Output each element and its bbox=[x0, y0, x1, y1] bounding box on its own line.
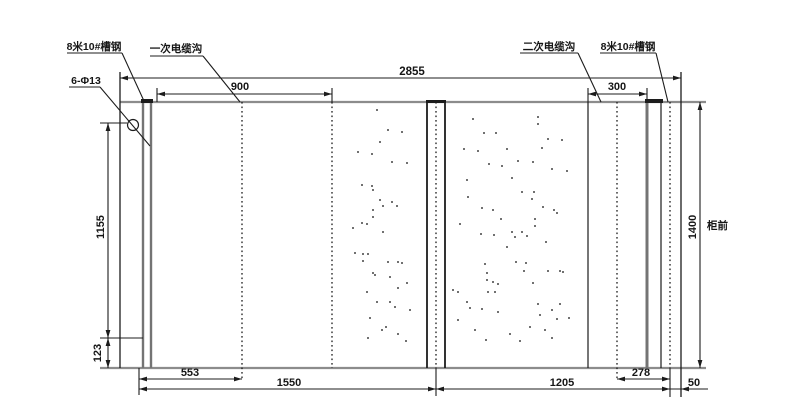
stipple-dot bbox=[559, 270, 561, 272]
stipple-dot bbox=[541, 147, 543, 149]
dimension-arrow bbox=[157, 92, 165, 97]
dimension-arrow bbox=[662, 387, 670, 392]
stipple-dot bbox=[506, 246, 508, 248]
stipple-dot bbox=[537, 116, 539, 118]
steel-end-cap bbox=[426, 100, 446, 103]
dimension-arrow bbox=[588, 92, 596, 97]
dimension-arrow bbox=[662, 377, 670, 382]
stipple-dot bbox=[397, 333, 399, 335]
stipple-dot bbox=[509, 333, 511, 335]
stipple-dot bbox=[497, 283, 499, 285]
stipple-dot bbox=[545, 241, 547, 243]
stipple-dot bbox=[381, 329, 383, 331]
stipple-dot bbox=[401, 131, 403, 133]
stipple-dot bbox=[354, 252, 356, 254]
stipple-dot bbox=[551, 168, 553, 170]
drawing-labels: 2855 900 300 553 278 1550 1205 50 1155 1… bbox=[67, 40, 729, 389]
stipple-dot bbox=[521, 231, 523, 233]
stipple-dot bbox=[459, 223, 461, 225]
dim-rail-to-right-edge-label: 50 bbox=[688, 377, 700, 389]
dimension-arrow bbox=[324, 92, 332, 97]
stipple-dot bbox=[486, 279, 488, 281]
dimension-arrow bbox=[139, 377, 147, 382]
stipple-dot bbox=[537, 303, 539, 305]
callout-cabinet-front: 柜前 bbox=[706, 219, 728, 232]
stipple-dot bbox=[556, 212, 558, 214]
stipple-dot bbox=[357, 151, 359, 153]
stipple-dot bbox=[529, 326, 531, 328]
stipple-dot bbox=[379, 199, 381, 201]
dimension-arrow bbox=[106, 330, 111, 338]
stipple-dot bbox=[477, 150, 479, 152]
stipple-dot bbox=[495, 132, 497, 134]
dimension-arrow bbox=[234, 377, 242, 382]
stipple-dot bbox=[452, 289, 454, 291]
stipple-dot bbox=[372, 209, 374, 211]
stipple-dot bbox=[472, 118, 474, 120]
dim-trench-to-rail-right-label: 278 bbox=[632, 367, 650, 379]
stipple-dot bbox=[487, 291, 489, 293]
dimension-arrow bbox=[698, 102, 703, 110]
stipple-dot bbox=[369, 317, 371, 319]
stipple-dot bbox=[361, 184, 363, 186]
stipple-dot bbox=[562, 271, 564, 273]
stipple-dot bbox=[394, 306, 396, 308]
stipple-dot bbox=[497, 311, 499, 313]
stipple-dot bbox=[506, 148, 508, 150]
dimension-arrow bbox=[698, 360, 703, 368]
stipple-dot bbox=[539, 314, 541, 316]
callout-bolt-holes: 6-Φ13 bbox=[71, 75, 101, 87]
stipple-dot bbox=[537, 123, 539, 125]
dim-rail-to-primary-trench-label: 553 bbox=[181, 367, 199, 379]
stipple-dot bbox=[532, 161, 534, 163]
stipple-dot bbox=[466, 179, 468, 181]
foundation-plan-drawing: 2855 900 300 553 278 1550 1205 50 1155 1… bbox=[0, 0, 790, 417]
stipple-dot bbox=[466, 301, 468, 303]
stipple-dot bbox=[551, 337, 553, 339]
stipple-dot bbox=[379, 141, 381, 143]
stipple-dot bbox=[534, 225, 536, 227]
dim-foundation-depth-label: 1400 bbox=[687, 215, 699, 239]
stipple-dot bbox=[457, 319, 459, 321]
stipple-dot bbox=[389, 301, 391, 303]
stipple-dot bbox=[366, 291, 368, 293]
dimension-arrow bbox=[436, 387, 444, 392]
stipple-dot bbox=[485, 339, 487, 341]
stipple-dot bbox=[532, 282, 534, 284]
dimension-arrow bbox=[617, 377, 625, 382]
stipple-dot bbox=[391, 161, 393, 163]
dim-secondary-trench-width-label: 300 bbox=[608, 81, 626, 93]
stipple-dot bbox=[374, 274, 376, 276]
stipple-dot bbox=[406, 282, 408, 284]
stipple-dot bbox=[515, 261, 517, 263]
stipple-dot bbox=[517, 160, 519, 162]
stipple-dot bbox=[492, 281, 494, 283]
stipple-dot bbox=[486, 272, 488, 274]
stipple-dot bbox=[371, 185, 373, 187]
dim-hole-span-vertical-label: 1155 bbox=[95, 215, 107, 239]
stipple-dot bbox=[481, 207, 483, 209]
stipple-dot bbox=[474, 329, 476, 331]
callout-secondary-cable-trench: 二次电缆沟 bbox=[523, 40, 576, 53]
callout-channel-steel-left: 8米10#槽钢 bbox=[67, 40, 122, 53]
stipple-dot bbox=[401, 262, 403, 264]
stipple-dot bbox=[367, 337, 369, 339]
dim-primary-trench-offset-label: 900 bbox=[231, 81, 249, 93]
stipple-dot bbox=[559, 303, 561, 305]
dimension-arrow bbox=[106, 360, 111, 368]
dimension-arrow bbox=[139, 387, 147, 392]
stipple-dot bbox=[488, 163, 490, 165]
stipple-dot bbox=[362, 260, 364, 262]
drawing-canvas: 2855 900 300 553 278 1550 1205 50 1155 1… bbox=[0, 0, 790, 417]
stipple-dot bbox=[547, 270, 549, 272]
stipple-dot bbox=[533, 191, 535, 193]
stipple-dot bbox=[511, 231, 513, 233]
stipple-dot bbox=[542, 206, 544, 208]
stipple-dot bbox=[568, 317, 570, 319]
leader-line bbox=[203, 56, 240, 102]
stipple-dot bbox=[372, 216, 374, 218]
stipple-dot bbox=[397, 261, 399, 263]
stipple-dot bbox=[544, 329, 546, 331]
drawing-geometry bbox=[67, 53, 708, 397]
stipple-dot bbox=[519, 340, 521, 342]
stipple-dot bbox=[525, 262, 527, 264]
stipple-dot bbox=[391, 201, 393, 203]
stipple-dot bbox=[493, 234, 495, 236]
stipple-dot bbox=[387, 261, 389, 263]
stipple-dot bbox=[382, 205, 384, 207]
stipple-dot bbox=[492, 209, 494, 211]
stipple-dot bbox=[406, 162, 408, 164]
stipple-dot bbox=[561, 139, 563, 141]
stipple-dot bbox=[389, 276, 391, 278]
stipple-dot bbox=[494, 291, 496, 293]
stipple-dot bbox=[547, 138, 549, 140]
dimension-arrow bbox=[106, 338, 111, 346]
dim-left-section-width-label: 1550 bbox=[277, 377, 301, 389]
stipple-dot bbox=[523, 270, 525, 272]
stipple-dot bbox=[534, 218, 536, 220]
stipple-dot bbox=[405, 340, 407, 342]
dim-hole-to-bottom-edge-label: 123 bbox=[92, 344, 104, 362]
stipple-dot bbox=[376, 301, 378, 303]
stipple-dot bbox=[463, 148, 465, 150]
callout-primary-cable-trench: 一次电缆沟 bbox=[150, 42, 203, 55]
dim-right-section-width-label: 1205 bbox=[550, 377, 574, 389]
stipple-dot bbox=[387, 129, 389, 131]
stipple-dot bbox=[521, 191, 523, 193]
stipple-dot bbox=[484, 263, 486, 265]
stipple-dot bbox=[372, 189, 374, 191]
stipple-dot bbox=[566, 170, 568, 172]
stipple-dot bbox=[526, 235, 528, 237]
stipple-dot bbox=[372, 272, 374, 274]
stipple-dot bbox=[376, 109, 378, 111]
stipple-dot bbox=[409, 309, 411, 311]
stipple-dot bbox=[553, 209, 555, 211]
stipple-dot bbox=[481, 308, 483, 310]
stipple-dot bbox=[361, 222, 363, 224]
stipple-dot bbox=[352, 227, 354, 229]
dimension-arrow bbox=[106, 123, 111, 131]
stipple-dot bbox=[511, 177, 513, 179]
stipple-dot bbox=[371, 153, 373, 155]
stipple-dot bbox=[469, 307, 471, 309]
steel-end-cap bbox=[645, 99, 663, 103]
stipple-dot bbox=[362, 253, 364, 255]
stipple-dot bbox=[551, 309, 553, 311]
stipple-dot bbox=[467, 196, 469, 198]
stipple-dot bbox=[396, 205, 398, 207]
stipple-dot bbox=[366, 223, 368, 225]
stipple-dot bbox=[483, 132, 485, 134]
stipple-dot bbox=[382, 231, 384, 233]
stipple-dot bbox=[397, 287, 399, 289]
dimension-arrow bbox=[673, 76, 681, 81]
stipple-dot bbox=[385, 326, 387, 328]
dimension-arrow bbox=[120, 76, 128, 81]
dimension-arrow bbox=[639, 92, 647, 97]
dimension-arrow bbox=[428, 387, 436, 392]
stipple-dot bbox=[501, 165, 503, 167]
stipple-dot bbox=[500, 218, 502, 220]
stipple-dot bbox=[531, 198, 533, 200]
stipple-dot bbox=[514, 236, 516, 238]
stipple-dot bbox=[480, 233, 482, 235]
callout-channel-steel-right: 8米10#槽钢 bbox=[601, 40, 656, 53]
stipple-dot bbox=[367, 253, 369, 255]
dim-overall-width-label: 2855 bbox=[399, 66, 425, 78]
stipple-dot bbox=[556, 318, 558, 320]
stipple-dot bbox=[457, 291, 459, 293]
